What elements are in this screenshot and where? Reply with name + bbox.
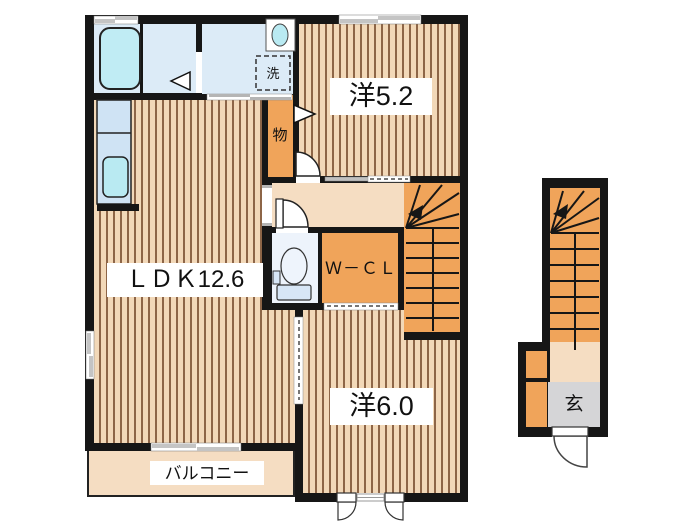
room-ldk-extension	[262, 310, 295, 443]
shoe-cabinet-upper	[526, 351, 547, 378]
label-wcl: Ｗ－ＣＬ	[322, 255, 400, 281]
label-storage: 物	[269, 124, 291, 146]
room-bathroom	[94, 24, 141, 93]
staircase-2f	[404, 183, 460, 332]
label-laundry: 洗	[261, 61, 285, 85]
label-balcony: バルコニー	[150, 461, 264, 485]
label-entrance: 玄	[561, 391, 587, 417]
shoe-cabinet-lower	[526, 382, 547, 427]
floor-plan-canvas: 洋5.2 ＬＤＫ12.6 洋6.0 Ｗ－ＣＬ 物 洗 バルコニー 玄	[0, 0, 700, 525]
label-western-5-2: 洋5.2	[330, 78, 432, 115]
stair-landing	[550, 342, 600, 382]
hallway	[272, 183, 404, 227]
room-toilet	[272, 233, 318, 303]
label-western-6-0: 洋6.0	[330, 388, 433, 425]
room-dressing	[143, 24, 196, 93]
label-ldk: ＬＤＫ12.6	[107, 263, 263, 297]
staircase-1f	[550, 188, 600, 342]
